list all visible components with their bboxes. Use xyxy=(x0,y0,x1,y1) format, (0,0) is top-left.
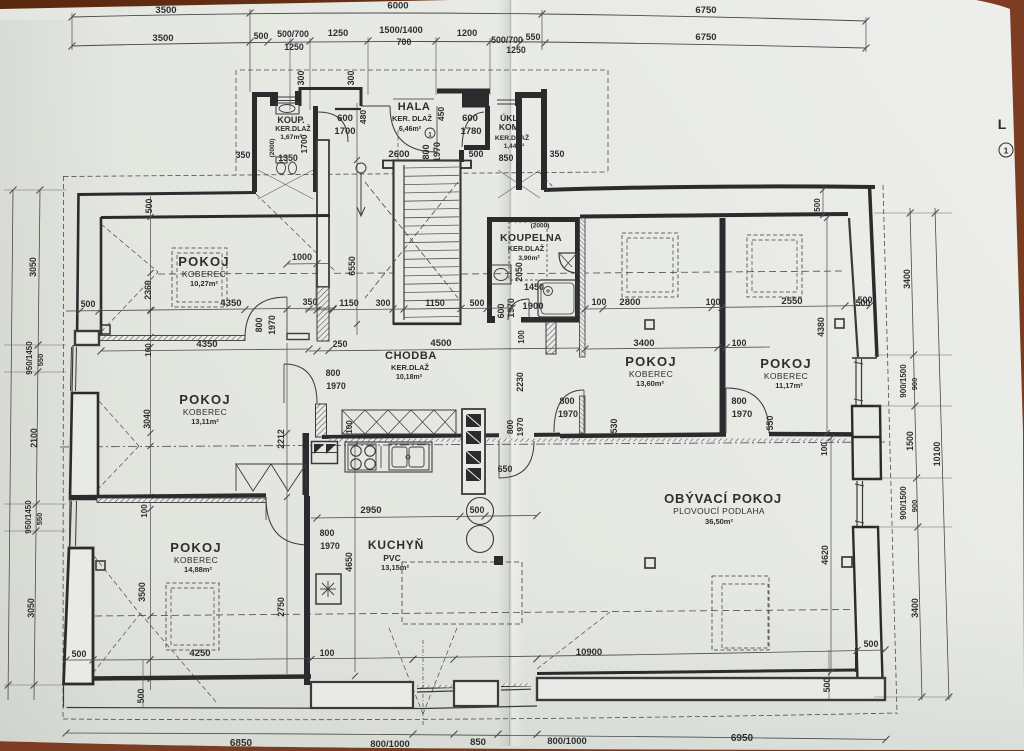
svg-text:POKOJ: POKOJ xyxy=(760,356,812,371)
svg-text:100: 100 xyxy=(320,648,335,658)
svg-text:6750: 6750 xyxy=(695,32,716,43)
svg-text:800/1000: 800/1000 xyxy=(547,736,587,747)
svg-text:KOBEREC: KOBEREC xyxy=(174,555,218,565)
svg-text:650: 650 xyxy=(498,464,513,474)
svg-text:(2000): (2000) xyxy=(531,223,550,230)
svg-text:4250: 4250 xyxy=(189,648,210,659)
svg-text:1: 1 xyxy=(428,132,432,139)
svg-text:1970: 1970 xyxy=(515,417,525,436)
svg-text:100: 100 xyxy=(706,297,721,307)
svg-text:600: 600 xyxy=(496,304,506,319)
svg-text:KOUP.: KOUP. xyxy=(277,115,304,125)
svg-text:PVC: PVC xyxy=(383,553,400,563)
svg-text:KER. DLAŽ: KER. DLAŽ xyxy=(392,114,432,123)
svg-text:2230: 2230 xyxy=(515,372,525,392)
svg-text:1: 1 xyxy=(1004,146,1009,156)
svg-text:13,60m²: 13,60m² xyxy=(636,379,664,388)
svg-text:KUCHYŇ: KUCHYŇ xyxy=(368,537,424,552)
svg-text:480: 480 xyxy=(358,110,368,124)
svg-text:900: 900 xyxy=(910,378,919,391)
svg-text:KOBEREC: KOBEREC xyxy=(764,371,808,381)
svg-text:950/1450: 950/1450 xyxy=(24,500,33,534)
svg-text:10,18m²: 10,18m² xyxy=(396,374,423,381)
svg-text:100: 100 xyxy=(345,420,354,434)
svg-text:KOBEREC: KOBEREC xyxy=(629,369,673,379)
svg-text:6,46m²: 6,46m² xyxy=(399,126,422,133)
svg-text:500: 500 xyxy=(144,199,154,214)
svg-text:OBÝVACÍ POKOJ: OBÝVACÍ POKOJ xyxy=(664,491,782,506)
svg-text:800: 800 xyxy=(421,144,431,159)
svg-text:500: 500 xyxy=(470,505,485,515)
svg-text:6000: 6000 xyxy=(387,1,408,12)
svg-text:1450: 1450 xyxy=(524,282,544,292)
svg-text:2950: 2950 xyxy=(360,505,381,516)
svg-text:850: 850 xyxy=(470,737,486,748)
svg-text:300: 300 xyxy=(296,71,306,86)
svg-text:2750: 2750 xyxy=(276,597,286,617)
svg-text:900/1500: 900/1500 xyxy=(899,364,908,398)
svg-text:1250: 1250 xyxy=(506,45,526,55)
svg-text:550: 550 xyxy=(526,32,541,42)
svg-text:3500: 3500 xyxy=(155,5,176,16)
svg-text:(2000): (2000) xyxy=(269,139,276,158)
svg-text:2212: 2212 xyxy=(276,429,286,449)
svg-text:1970: 1970 xyxy=(432,142,442,162)
svg-text:4650: 4650 xyxy=(344,552,354,572)
svg-text:1350: 1350 xyxy=(278,153,298,163)
svg-text:1970: 1970 xyxy=(732,409,752,419)
svg-text:4350: 4350 xyxy=(196,339,217,350)
svg-text:100: 100 xyxy=(140,504,149,518)
svg-text:500/700: 500/700 xyxy=(277,29,309,39)
svg-text:1250: 1250 xyxy=(328,28,348,38)
svg-text:800: 800 xyxy=(559,396,574,406)
svg-text:500: 500 xyxy=(72,649,87,659)
svg-text:100: 100 xyxy=(820,442,829,456)
svg-text:450: 450 xyxy=(436,107,446,121)
svg-text:3,90m²: 3,90m² xyxy=(518,255,540,262)
svg-text:PLOVOUCÍ PODLAHA: PLOVOUCÍ PODLAHA xyxy=(673,506,765,516)
svg-text:1970: 1970 xyxy=(320,541,340,551)
svg-text:500: 500 xyxy=(856,298,871,308)
svg-text:3050: 3050 xyxy=(28,257,38,277)
svg-text:KER.DLAŽ: KER.DLAŽ xyxy=(508,244,545,253)
svg-text:6850: 6850 xyxy=(230,738,253,749)
svg-text:13,15m²: 13,15m² xyxy=(381,563,409,572)
svg-text:KOBEREC: KOBEREC xyxy=(183,407,227,417)
svg-text:3040: 3040 xyxy=(142,409,152,429)
svg-text:600: 600 xyxy=(462,113,478,124)
svg-text:500: 500 xyxy=(136,689,146,704)
svg-text:550: 550 xyxy=(765,416,775,431)
svg-text:500: 500 xyxy=(254,31,269,41)
svg-text:KOM.: KOM. xyxy=(499,122,521,132)
svg-text:1000: 1000 xyxy=(292,252,312,262)
svg-text:2600: 2600 xyxy=(388,149,409,160)
svg-text:1150: 1150 xyxy=(425,298,445,308)
svg-text:1970: 1970 xyxy=(558,409,578,419)
svg-text:1700: 1700 xyxy=(299,134,309,153)
svg-text:2550: 2550 xyxy=(781,296,802,307)
svg-text:1780: 1780 xyxy=(460,126,481,137)
svg-text:1250: 1250 xyxy=(284,42,304,52)
svg-text:KOBEREC: KOBEREC xyxy=(182,269,226,279)
svg-text:KER.DLAŽ: KER.DLAŽ xyxy=(495,133,529,142)
svg-text:800: 800 xyxy=(505,420,515,434)
svg-text:1970: 1970 xyxy=(267,315,277,335)
svg-text:950/1450: 950/1450 xyxy=(25,341,34,375)
svg-text:POKOJ: POKOJ xyxy=(625,354,677,369)
svg-text:4620: 4620 xyxy=(820,545,830,565)
svg-text:250: 250 xyxy=(333,339,348,349)
svg-text:350: 350 xyxy=(550,149,565,159)
svg-text:550: 550 xyxy=(35,513,44,526)
svg-text:3400: 3400 xyxy=(910,598,920,618)
svg-text:900: 900 xyxy=(910,500,919,513)
svg-text:300: 300 xyxy=(376,298,391,308)
svg-text:4380: 4380 xyxy=(816,317,826,337)
svg-text:500: 500 xyxy=(864,639,879,649)
svg-text:1900: 1900 xyxy=(522,301,543,312)
svg-text:36,50m²: 36,50m² xyxy=(705,517,733,526)
svg-text:6950: 6950 xyxy=(731,733,754,744)
svg-text:KOUPELNA: KOUPELNA xyxy=(500,232,562,244)
svg-text:HALA: HALA xyxy=(398,101,431,113)
svg-text:500/700: 500/700 xyxy=(491,35,523,45)
svg-text:3400: 3400 xyxy=(633,338,654,349)
svg-text:500: 500 xyxy=(822,678,832,693)
svg-text:3400: 3400 xyxy=(902,269,912,289)
svg-text:500: 500 xyxy=(813,198,822,212)
svg-text:6750: 6750 xyxy=(695,5,716,16)
svg-text:KER.DLAŽ: KER.DLAŽ xyxy=(275,124,311,133)
svg-text:100: 100 xyxy=(517,330,526,344)
svg-text:10100: 10100 xyxy=(932,442,942,467)
svg-text:1700: 1700 xyxy=(334,126,355,137)
svg-text:POKOJ: POKOJ xyxy=(178,254,230,269)
svg-text:2100: 2100 xyxy=(29,428,39,448)
svg-text:11,17m²: 11,17m² xyxy=(775,381,803,390)
svg-text:1500: 1500 xyxy=(905,431,915,451)
svg-text:800: 800 xyxy=(731,396,746,406)
svg-text:350: 350 xyxy=(303,297,318,307)
svg-text:10,27m²: 10,27m² xyxy=(190,279,218,288)
svg-text:3500: 3500 xyxy=(137,582,147,602)
svg-text:4500: 4500 xyxy=(430,338,451,349)
svg-text:1500/1400: 1500/1400 xyxy=(379,25,422,35)
svg-text:KER.DLAŽ: KER.DLAŽ xyxy=(391,363,429,372)
svg-text:14,88m²: 14,88m² xyxy=(184,565,212,574)
svg-text:2800: 2800 xyxy=(619,297,640,308)
svg-text:1200: 1200 xyxy=(457,28,477,38)
svg-text:850: 850 xyxy=(499,153,514,163)
svg-text:300: 300 xyxy=(346,71,356,86)
svg-text:L: L xyxy=(998,116,1007,132)
svg-text:500: 500 xyxy=(469,149,484,159)
svg-text:100: 100 xyxy=(144,343,153,357)
svg-text:4350: 4350 xyxy=(220,298,241,309)
svg-text:800: 800 xyxy=(320,528,335,538)
svg-text:2360: 2360 xyxy=(143,280,153,300)
svg-text:350: 350 xyxy=(236,150,251,160)
svg-text:500: 500 xyxy=(81,299,96,309)
svg-text:800: 800 xyxy=(326,368,341,378)
svg-text:100: 100 xyxy=(592,297,607,307)
svg-text:800/1000: 800/1000 xyxy=(370,739,410,750)
svg-text:2050: 2050 xyxy=(514,262,524,282)
svg-text:10900: 10900 xyxy=(576,647,602,658)
svg-text:530: 530 xyxy=(609,419,619,434)
svg-text:700: 700 xyxy=(397,37,412,47)
svg-text:6550: 6550 xyxy=(347,256,357,276)
svg-text:1150: 1150 xyxy=(339,298,359,308)
svg-text:3050: 3050 xyxy=(26,598,36,618)
svg-text:13,11m²: 13,11m² xyxy=(191,417,219,426)
svg-text:500: 500 xyxy=(470,298,485,308)
svg-text:POKOJ: POKOJ xyxy=(170,540,222,555)
svg-text:600: 600 xyxy=(337,113,353,124)
svg-text:CHODBA: CHODBA xyxy=(385,350,437,362)
svg-text:3500: 3500 xyxy=(152,33,173,44)
svg-text:550: 550 xyxy=(36,354,45,367)
svg-text:1,44m²: 1,44m² xyxy=(504,143,525,150)
svg-text:900/1500: 900/1500 xyxy=(899,486,908,520)
svg-text:POKOJ: POKOJ xyxy=(179,392,231,407)
svg-text:800: 800 xyxy=(254,318,264,333)
svg-text:1970: 1970 xyxy=(326,381,346,391)
svg-text:100: 100 xyxy=(732,338,747,348)
